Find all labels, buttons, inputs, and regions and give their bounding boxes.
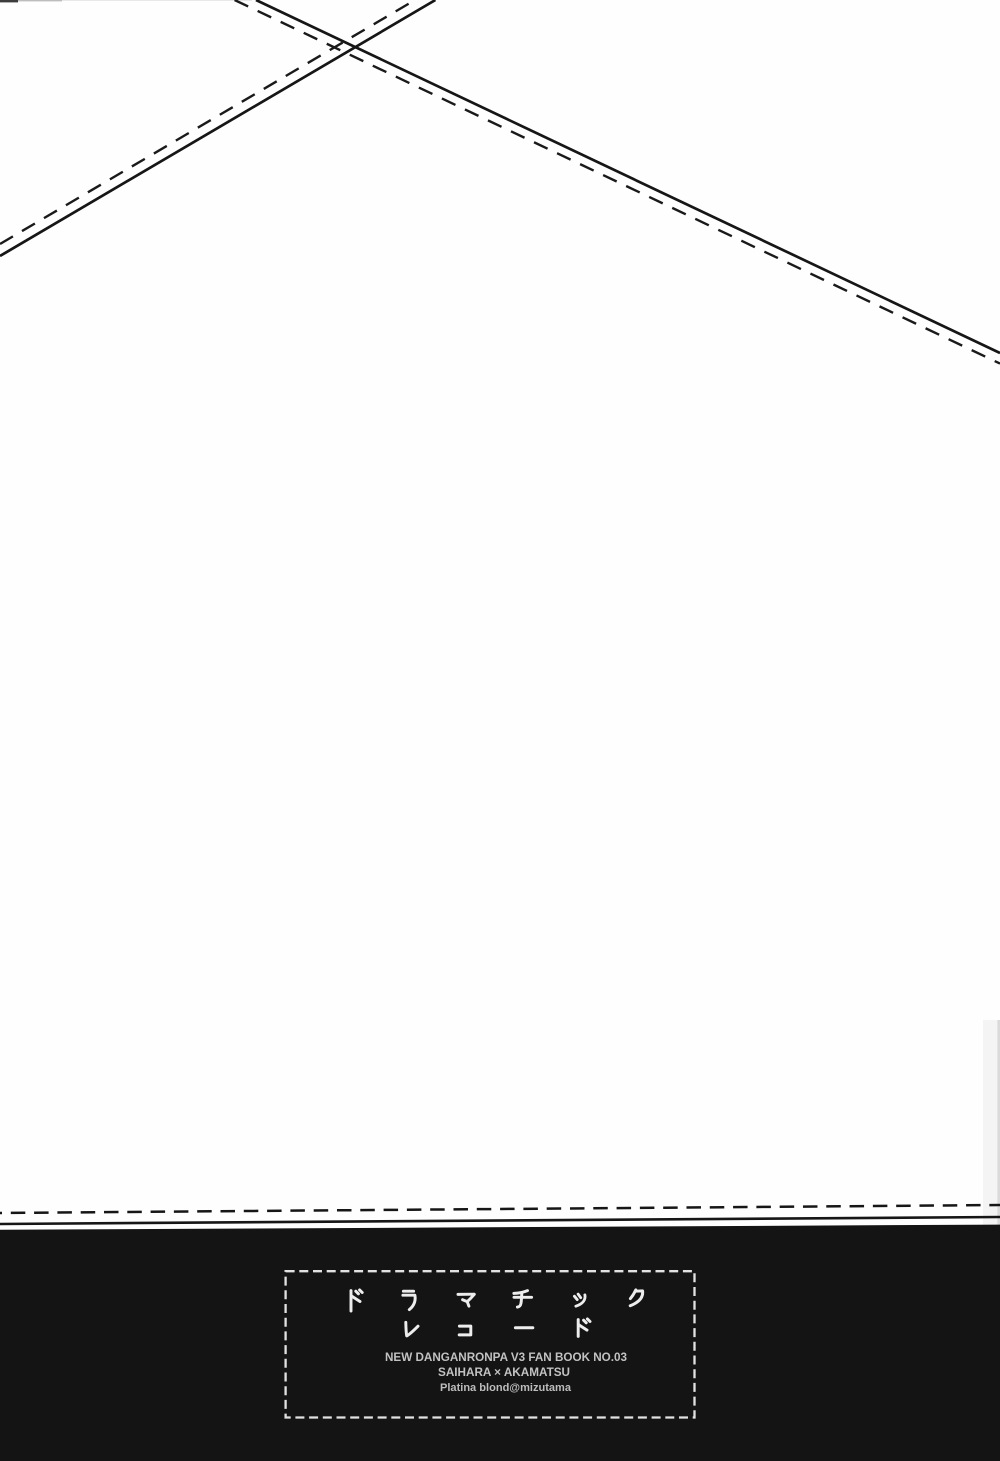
- svg-text:SAIHARA × AKAMATSU: SAIHARA × AKAMATSU: [438, 1366, 570, 1379]
- svg-text:NEW DANGANRONPA V3 FAN BOOK NO: NEW DANGANRONPA V3 FAN BOOK NO.03: [385, 1351, 627, 1364]
- svg-text:Platina blond@mizutama: Platina blond@mizutama: [440, 1382, 572, 1394]
